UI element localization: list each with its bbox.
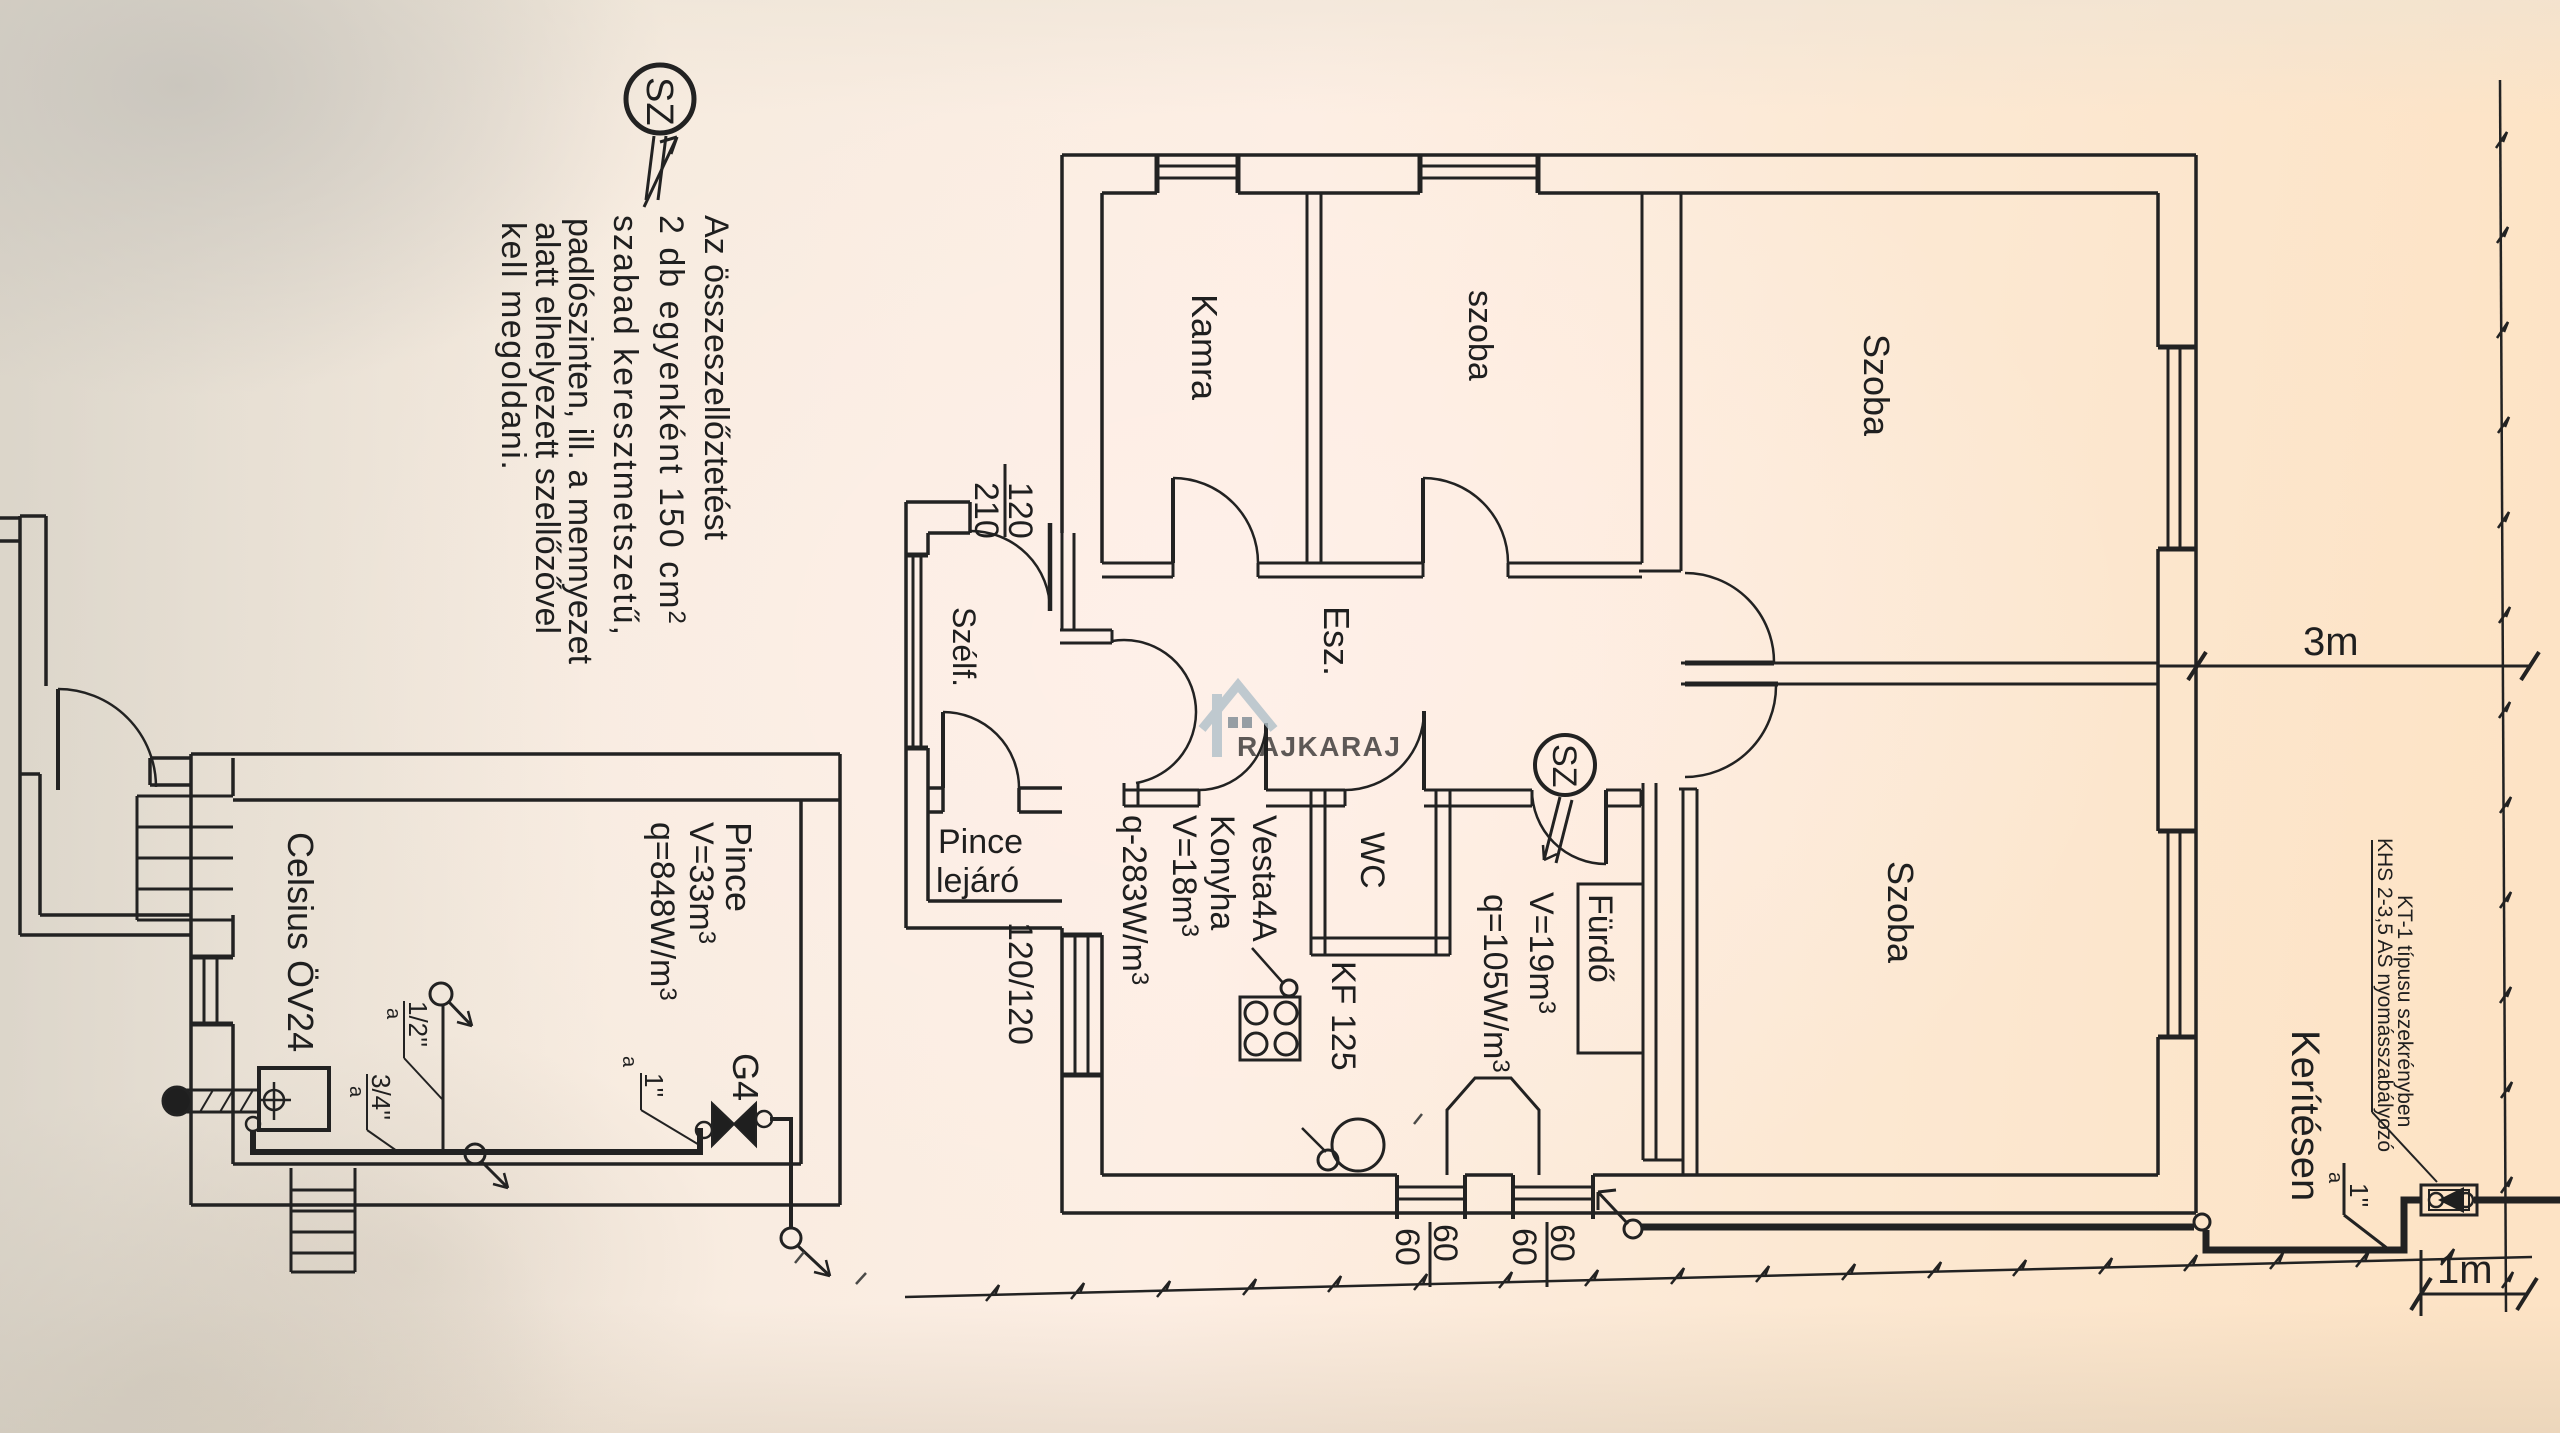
svg-text:KT-1 típusu szekrényben: KT-1 típusu szekrényben <box>2393 895 2416 1127</box>
svg-text:q-283W/m3: q-283W/m3 <box>1115 815 1153 985</box>
svg-text:Konyha: Konyha <box>1203 815 1241 930</box>
svg-text:3/4'': 3/4'' <box>366 1074 396 1120</box>
svg-text:1/2'': 1/2'' <box>403 1001 433 1047</box>
svg-text:WC: WC <box>1353 832 1391 889</box>
svg-text:210: 210 <box>967 482 1005 539</box>
svg-text:a: a <box>345 1086 367 1098</box>
svg-text:alatt elhelyezett szellőzővel: alatt elhelyezett szellőzővel <box>528 222 566 634</box>
svg-text:szoba: szoba <box>1461 290 1499 381</box>
svg-text:Celsius ÖV24: Celsius ÖV24 <box>280 832 321 1052</box>
svg-text:lejáró: lejáró <box>936 862 1019 900</box>
svg-text:Szoba: Szoba <box>1880 861 1921 964</box>
svg-text:q=105W/m3: q=105W/m3 <box>1476 894 1514 1073</box>
svg-text:60: 60 <box>1543 1224 1581 1262</box>
svg-text:Pince: Pince <box>718 822 759 912</box>
svg-text:SZ: SZ <box>1545 744 1583 787</box>
svg-text:Kamra: Kamra <box>1184 294 1225 401</box>
svg-text:1'': 1'' <box>2344 1183 2374 1207</box>
svg-text:Esz.: Esz. <box>1316 606 1357 676</box>
svg-text:Az összeszellőztetést: Az összeszellőztetést <box>697 215 735 541</box>
svg-text:KHS 2-3,5 AS nyomásszabályozó: KHS 2-3,5 AS nyomásszabályozó <box>2373 838 2396 1152</box>
svg-text:1'': 1'' <box>639 1073 669 1097</box>
svg-text:120: 120 <box>1001 482 1039 539</box>
svg-text:RAJKARAJ: RAJKARAJ <box>1237 731 1401 762</box>
svg-text:60: 60 <box>1388 1228 1426 1266</box>
svg-text:V=19m3: V=19m3 <box>1522 892 1560 1014</box>
svg-text:Szélf.: Szélf. <box>946 607 982 687</box>
svg-text:SZ: SZ <box>638 77 680 126</box>
svg-text:120/120: 120/120 <box>1001 922 1039 1045</box>
svg-text:2 db egyenként 150 cm2: 2 db egyenként 150 cm2 <box>652 215 690 626</box>
svg-text:60: 60 <box>1505 1228 1543 1266</box>
svg-text:KF 125: KF 125 <box>1324 961 1362 1071</box>
svg-text:a: a <box>382 1008 404 1020</box>
svg-text:Fürdő: Fürdő <box>1581 894 1619 983</box>
svg-text:V=18m3: V=18m3 <box>1165 815 1203 937</box>
svg-text:szabad keresztmetszetű,: szabad keresztmetszetű, <box>606 215 644 637</box>
svg-text:Kerítésen: Kerítésen <box>2283 1030 2327 1201</box>
svg-text:1m: 1m <box>2437 1248 2493 1292</box>
svg-text:Szoba: Szoba <box>1856 334 1897 437</box>
svg-text:Vesta4A: Vesta4A <box>1245 815 1283 942</box>
svg-text:V=33m3: V=33m3 <box>682 822 720 944</box>
svg-text:Pince: Pince <box>938 823 1023 861</box>
svg-text:a: a <box>618 1056 640 1068</box>
svg-text:G4: G4 <box>725 1053 766 1101</box>
svg-text:kell megoldani.: kell megoldani. <box>494 222 532 471</box>
svg-text:q=848W/m3: q=848W/m3 <box>643 822 681 1001</box>
svg-text:60: 60 <box>1426 1224 1464 1262</box>
svg-text:3m: 3m <box>2303 620 2359 664</box>
